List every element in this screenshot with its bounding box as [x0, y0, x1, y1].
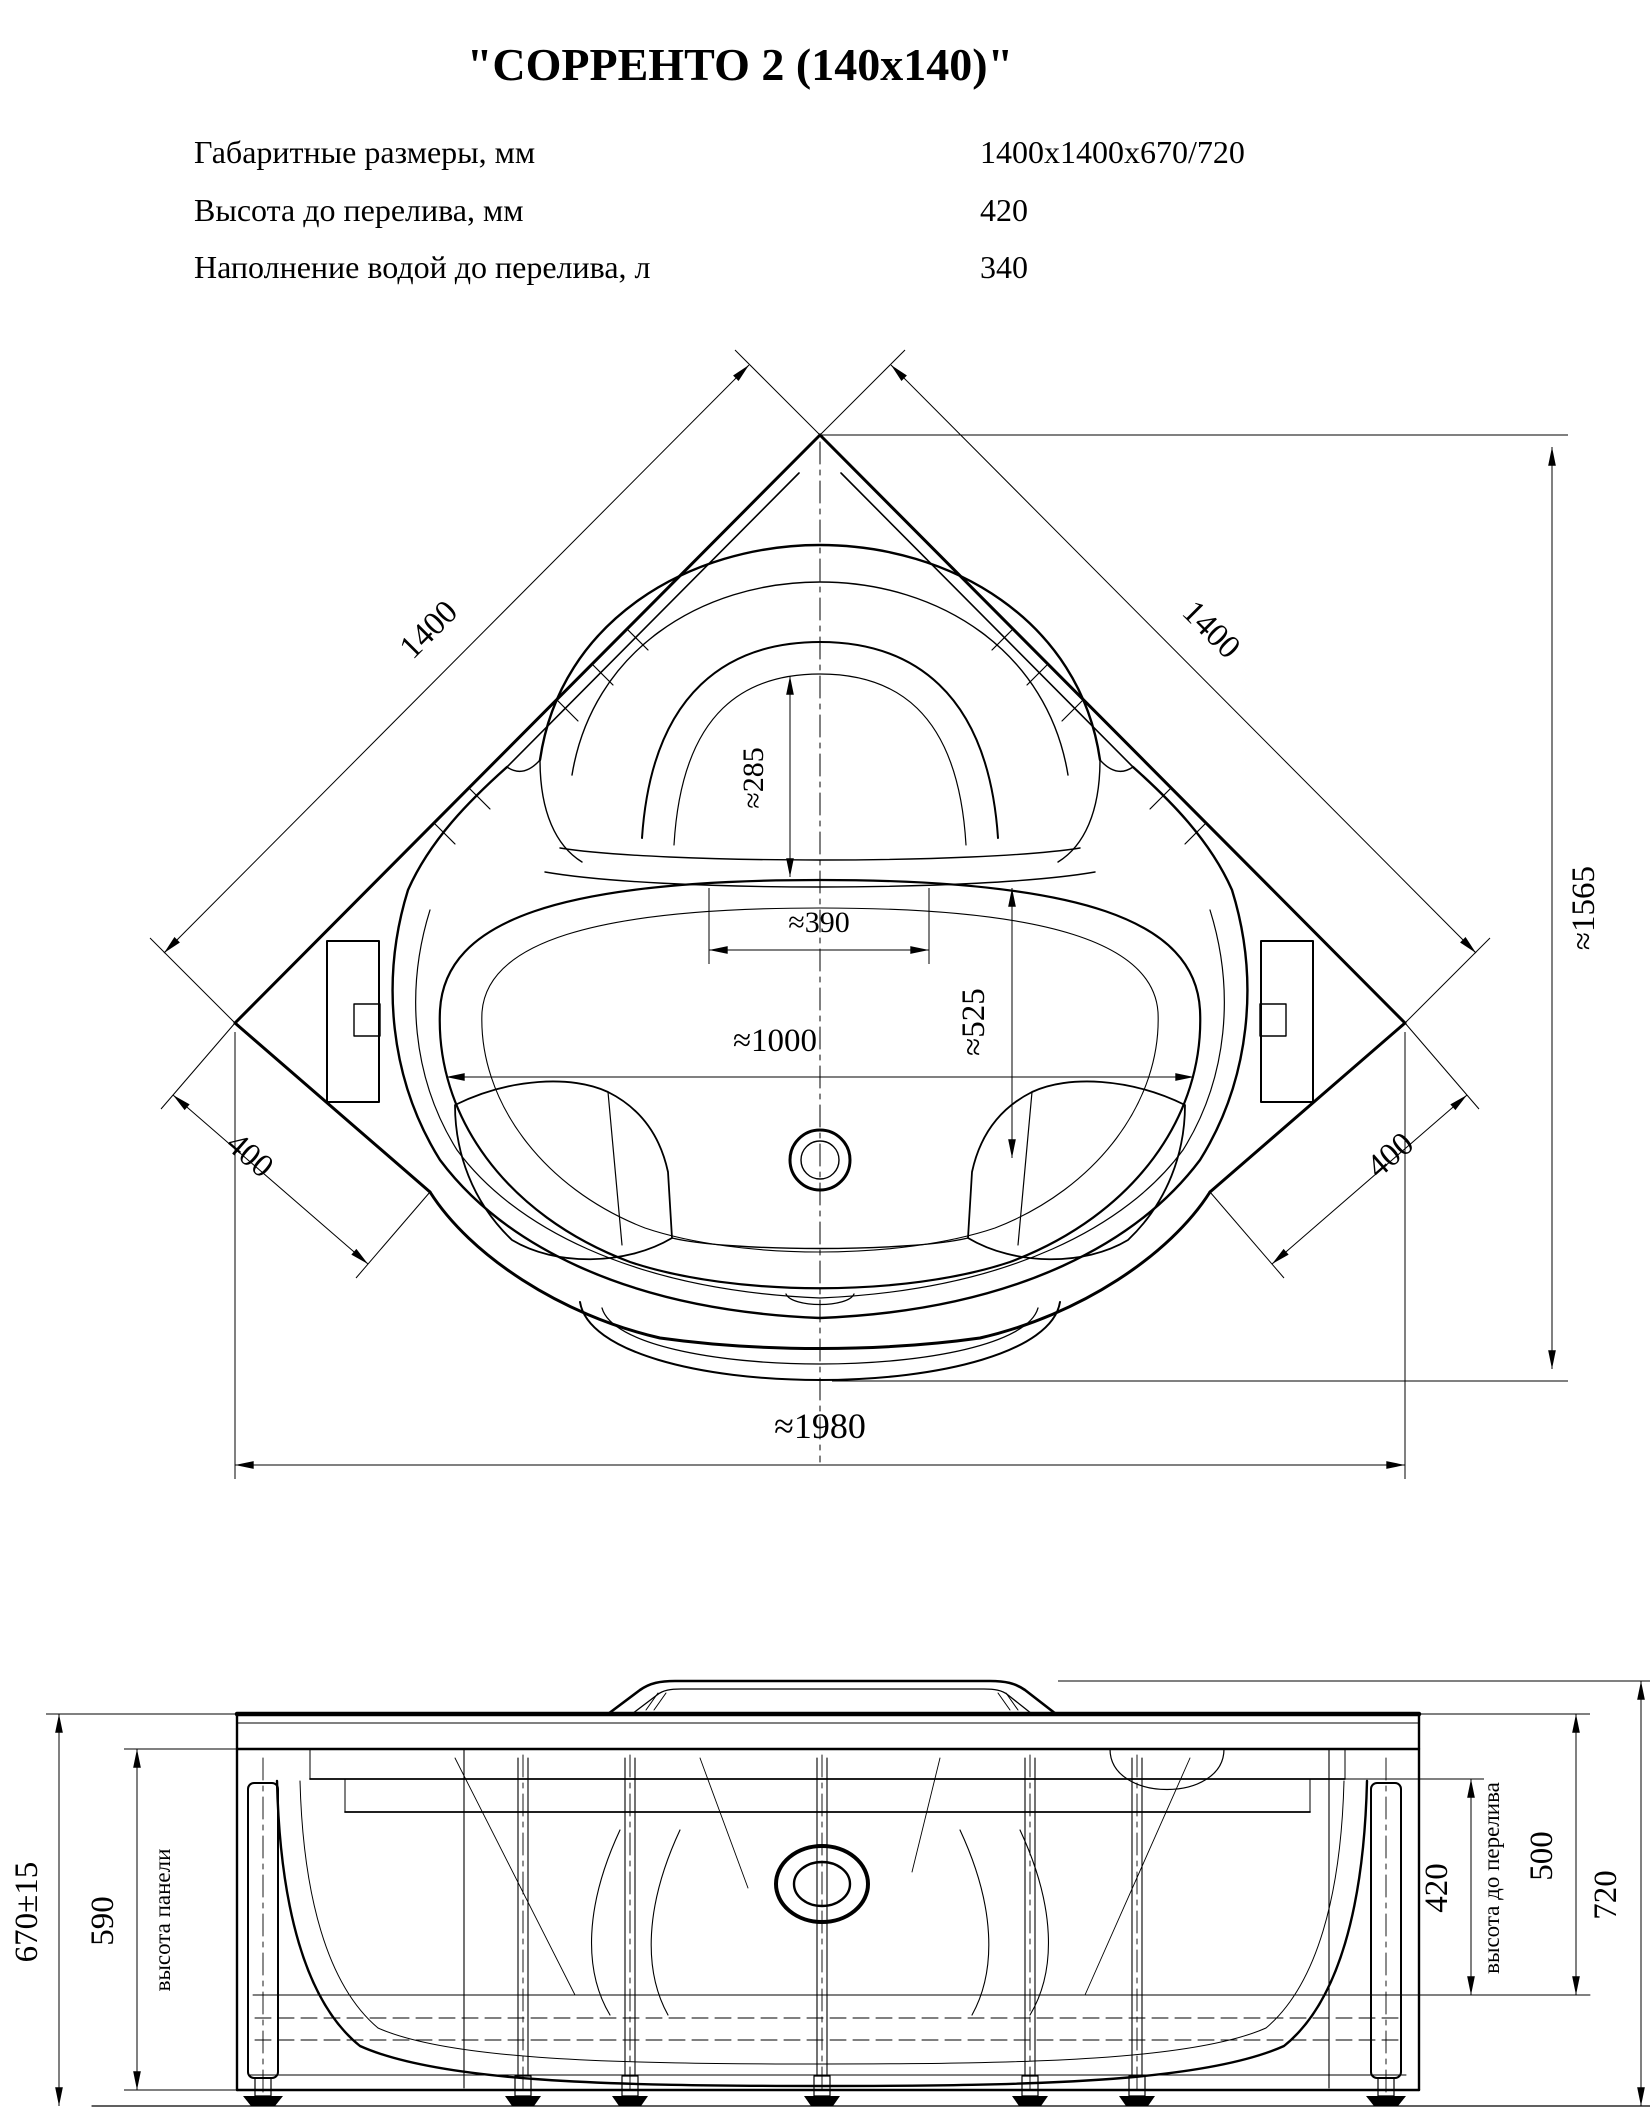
- dim-text-basin-length: ≈1000: [733, 1023, 817, 1059]
- dim-text-wall-right: 1400: [1175, 594, 1247, 666]
- side-box-left: [327, 941, 380, 1102]
- dimension-corner-left: 400: [161, 1023, 430, 1278]
- seat-right: [968, 1081, 1185, 1259]
- support-column-right: [1366, 1758, 1406, 2106]
- dimension-headrest-depth: ≈285: [737, 676, 790, 877]
- support-column-left: [243, 1758, 283, 2106]
- label-panel-height: высота панели: [150, 1849, 175, 1992]
- dim-text-corner-left: 400: [219, 1126, 280, 1186]
- rim-section: [237, 1714, 1419, 1749]
- dim-text-wall-left: 1400: [393, 594, 465, 666]
- dim-text-panel-height: 590: [85, 1896, 121, 1946]
- dimension-basin-width: ≈525: [956, 888, 1012, 1158]
- headrest-hidden-arc: [1110, 1749, 1224, 1790]
- dim-text-height-overall: 670±15: [9, 1862, 45, 1963]
- support-legs: [505, 1755, 1155, 2106]
- bathtub-drawing: "СОРРЕНТО 2 (140x140)" Габаритные размер…: [0, 0, 1650, 2113]
- spec-label-volume: Наполнение водой до перелива, л: [194, 249, 651, 285]
- dimension-inner-height: 500: [1419, 1714, 1590, 1995]
- spec-label-dimensions: Габаритные размеры, мм: [194, 134, 535, 170]
- dimension-max-height: 720: [1058, 1681, 1650, 2106]
- dim-text-max-height: 720: [1588, 1870, 1624, 1920]
- dim-text-total-depth: ≈1565: [1566, 866, 1602, 950]
- seat-left: [455, 1081, 672, 1259]
- spec-value-volume: 340: [980, 249, 1028, 285]
- dimension-panel-height: 590 высота панели: [85, 1749, 237, 2090]
- dimension-wall-left: 1400: [150, 350, 820, 1023]
- dimension-headrest-width: ≈390: [709, 888, 929, 964]
- drawing-page: "СОРРЕНТО 2 (140x140)" Габаритные размер…: [0, 0, 1650, 2113]
- label-overflow-height: высота до перелива: [1479, 1782, 1504, 1974]
- spec-value-dimensions: 1400x1400x670/720: [980, 134, 1245, 170]
- dim-text-inner-height: 500: [1524, 1831, 1560, 1881]
- dimension-total-depth: ≈1565: [820, 435, 1602, 1381]
- dimension-height-overall: 670±15: [9, 1714, 237, 2106]
- dim-text-headrest-depth: ≈285: [737, 747, 770, 808]
- dim-text-headrest-width: ≈390: [788, 906, 849, 939]
- header: "СОРРЕНТО 2 (140x140)" Габаритные размер…: [194, 39, 1245, 285]
- dim-text-front-width: ≈1980: [774, 1406, 866, 1446]
- side-box-right: [1260, 941, 1313, 1102]
- front-view: 670±15 590 высота панели 420 высота до п…: [9, 1681, 1650, 2106]
- dimension-wall-right: 1400: [820, 350, 1490, 1023]
- top-handle: [608, 1681, 1056, 1714]
- dim-text-overflow-height: 420: [1419, 1863, 1455, 1913]
- top-view: 1400 1400 ≈1565 ≈1980 ≈285 ≈390 ≈1: [150, 350, 1602, 1479]
- spec-label-overflow: Высота до перелива, мм: [194, 192, 524, 228]
- page-title: "СОРРЕНТО 2 (140x140)": [467, 39, 1013, 90]
- dimension-overflow-height: 420 высота до перелива: [1345, 1779, 1504, 1995]
- spec-value-overflow: 420: [980, 192, 1028, 228]
- dim-text-corner-right: 400: [1360, 1126, 1421, 1186]
- projection-lines: [455, 1758, 1190, 1995]
- dim-text-basin-width: ≈525: [956, 988, 992, 1056]
- dimension-corner-right: 400: [1210, 1023, 1479, 1278]
- apron-panel: [237, 1714, 1419, 2090]
